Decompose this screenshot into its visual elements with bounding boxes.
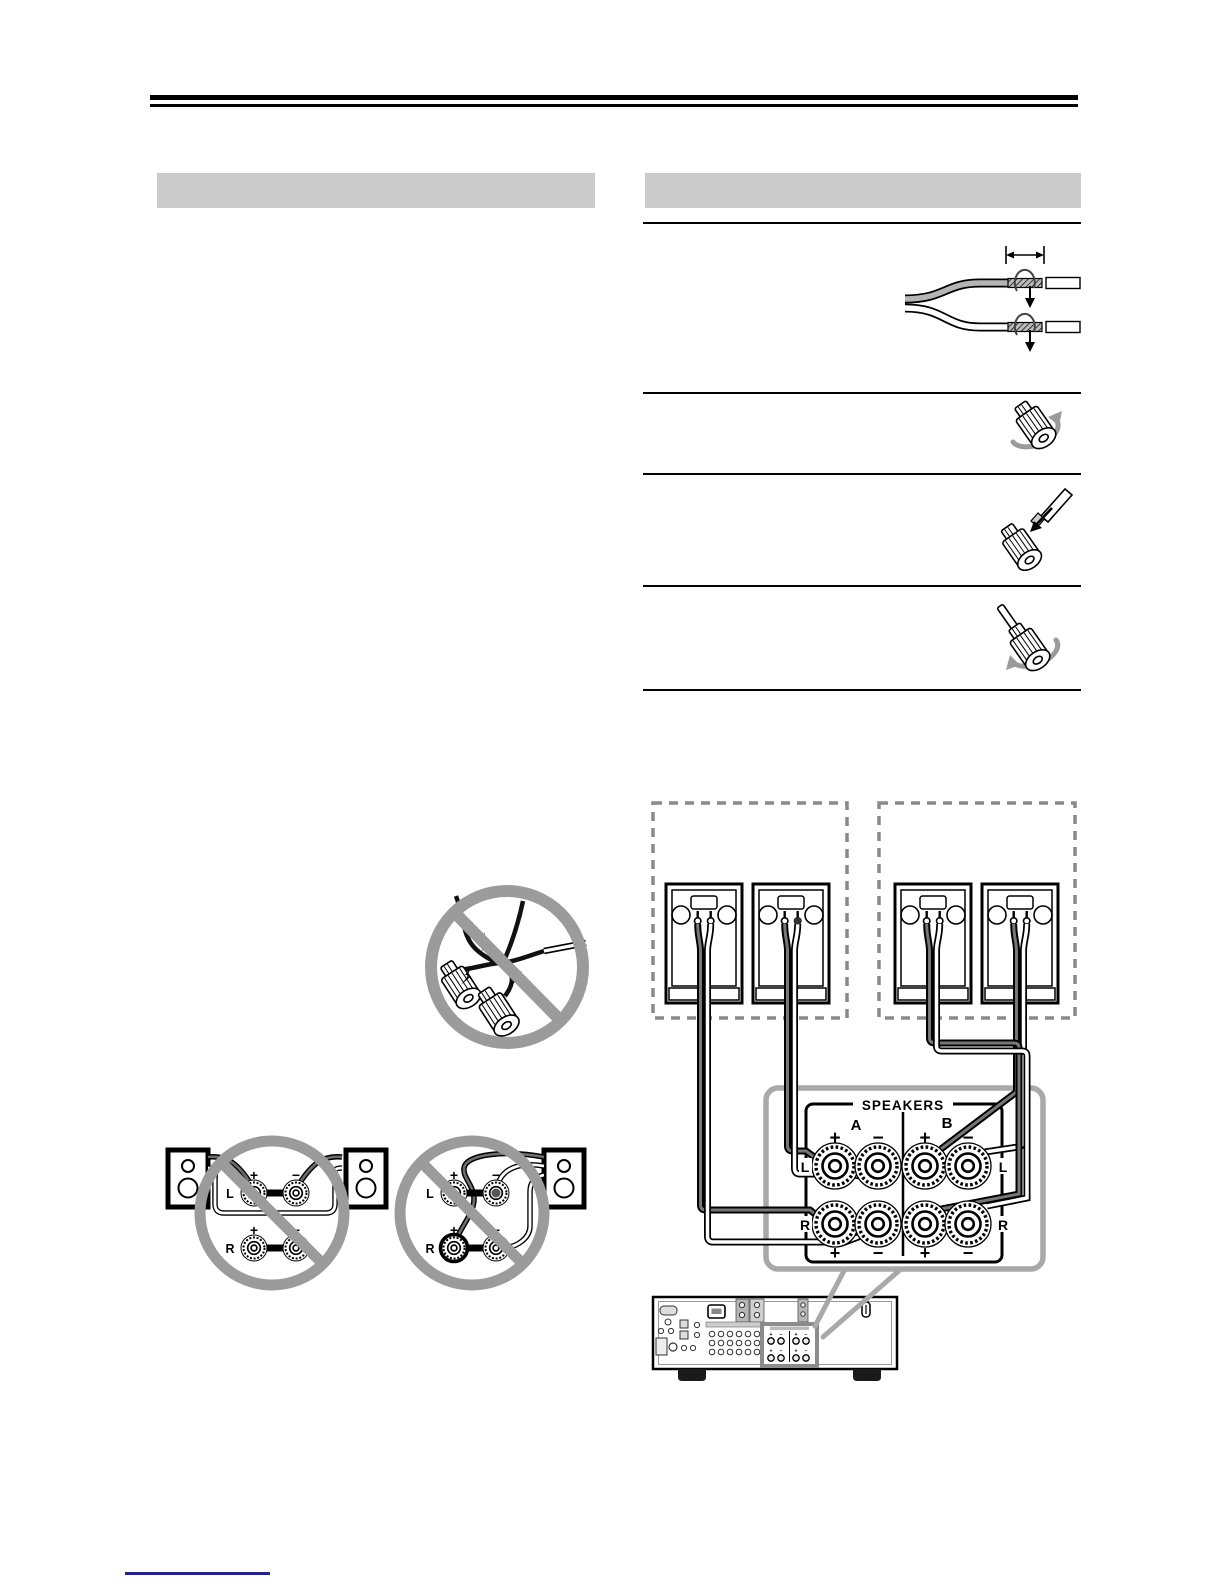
digital-audio-jacks [798, 1299, 808, 1322]
terminal-b-left-plus [902, 1143, 948, 1189]
terminal-a-right-plus [812, 1201, 858, 1247]
svg-text:−: − [780, 1349, 783, 1355]
left-section-header-bar [157, 173, 595, 208]
svg-text:L: L [999, 1159, 1008, 1175]
top-rule-thick [150, 95, 1078, 100]
right-section-header-bar [645, 173, 1081, 208]
right-channel-label: R [425, 1242, 434, 1256]
instruction-divider-1 [643, 222, 1081, 224]
terminal-a-right-minus [855, 1201, 901, 1247]
plus-label: + [450, 1167, 458, 1183]
group-b-label: B [942, 1115, 953, 1132]
svg-text:+: + [770, 1349, 773, 1355]
svg-text:R: R [800, 1217, 810, 1233]
loosen-terminal-knob-icon [998, 396, 1082, 472]
no-touching-bare-wires-icon [418, 878, 600, 1060]
prohibited-diagram-2: + − L + − R [400, 1141, 584, 1285]
plus-label: + [250, 1167, 258, 1183]
manual-page: + − L + − R [0, 0, 1224, 1584]
terminal-b-right-minus [945, 1201, 991, 1247]
terminal-b-right-plus [902, 1201, 948, 1247]
prohibited-diagram-1: + − L + − R [168, 1141, 386, 1285]
group-a-label: A [851, 1117, 862, 1134]
svg-text:−: − [805, 1332, 808, 1338]
svg-text:R: R [998, 1217, 1008, 1233]
svg-text:+: + [770, 1332, 773, 1338]
svg-text:−: − [805, 1349, 808, 1355]
receiver-back-panel: + − + − + − + − [653, 1297, 897, 1381]
svg-text:L: L [801, 1159, 810, 1175]
terminal-b-left-minus [945, 1143, 991, 1189]
speaker-wire-rod [1041, 489, 1072, 522]
receiver-speaker-terminals: + − + − + − + − [762, 1324, 817, 1366]
component-video-jacks [736, 1299, 764, 1322]
svg-text:+: + [795, 1332, 798, 1338]
plus-label: + [250, 1222, 258, 1238]
receiver-foot [853, 1369, 881, 1381]
left-channel-label: L [226, 1187, 234, 1201]
plus-label: + [450, 1222, 458, 1238]
bare-wire-2 [503, 901, 523, 963]
speakers-panel-label: SPEAKERS [862, 1098, 944, 1113]
tighten-terminal-knob-icon [992, 590, 1080, 686]
svg-text:−: − [780, 1332, 783, 1338]
label-box-top [1046, 278, 1080, 289]
terminal-a-left-minus [855, 1143, 901, 1189]
minus-label: − [492, 1167, 500, 1183]
right-channel-label: R [225, 1242, 234, 1256]
left-channel-label: L [426, 1187, 434, 1201]
svg-text:+: + [795, 1349, 798, 1355]
twist-arrow-bottom [1015, 314, 1035, 352]
instruction-divider-5 [643, 689, 1081, 691]
terminal-a-left-plus [812, 1143, 858, 1189]
twist-arrow-top [1015, 270, 1035, 308]
top-rule-thin [150, 104, 1078, 107]
label-box-bottom [1046, 322, 1080, 333]
footer-rule [125, 1572, 270, 1575]
instruction-divider-4 [643, 585, 1081, 587]
insert-wire-into-terminal-icon [992, 484, 1080, 584]
prohibited-wiring-diagrams: + − L + − R [150, 1125, 605, 1310]
instruction-divider-3 [643, 473, 1081, 475]
speaker-connection-diagram: + − + − + − + − SPEAKERS A [640, 795, 1090, 1390]
receiver-foot [678, 1369, 706, 1381]
minus-label: − [292, 1167, 300, 1183]
strip-and-twist-wire-icon [898, 243, 1082, 355]
instruction-divider-2 [643, 392, 1081, 394]
